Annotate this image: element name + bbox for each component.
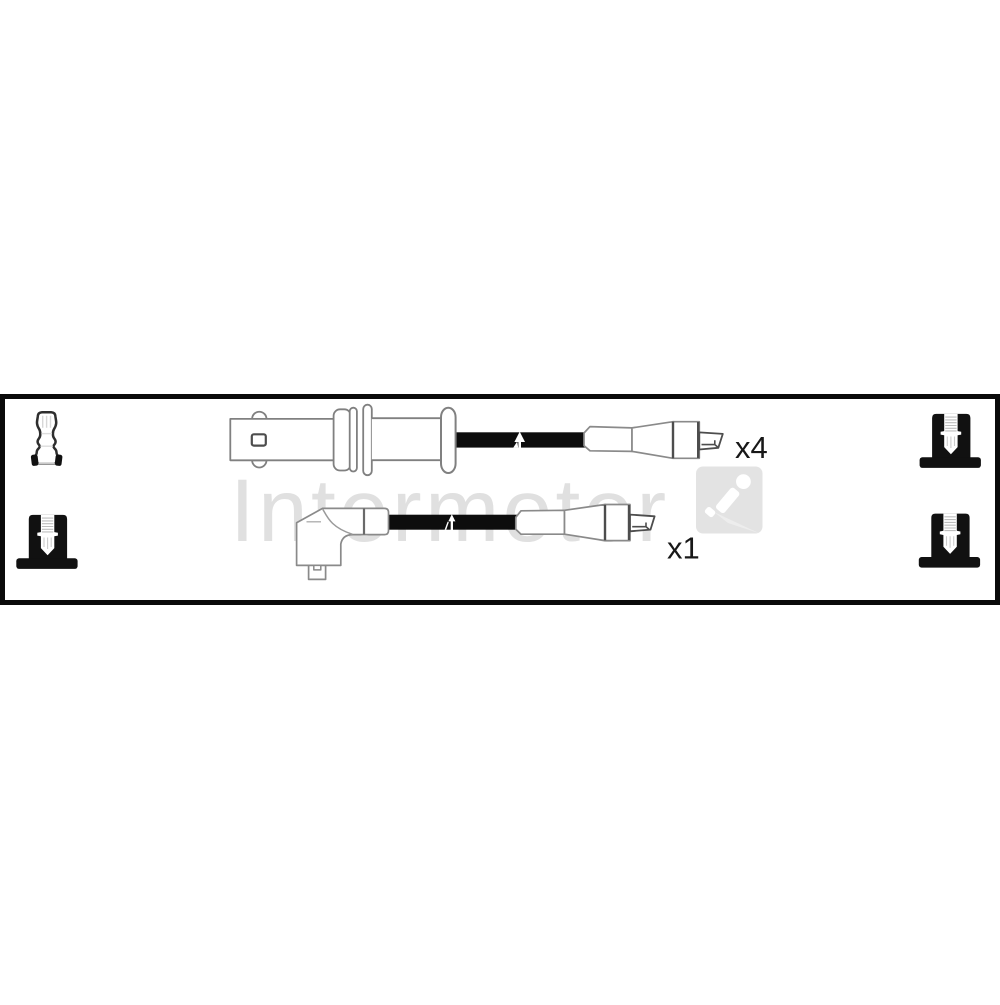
svg-text:x1: x1	[667, 531, 700, 566]
svg-text:x4: x4	[735, 430, 768, 465]
